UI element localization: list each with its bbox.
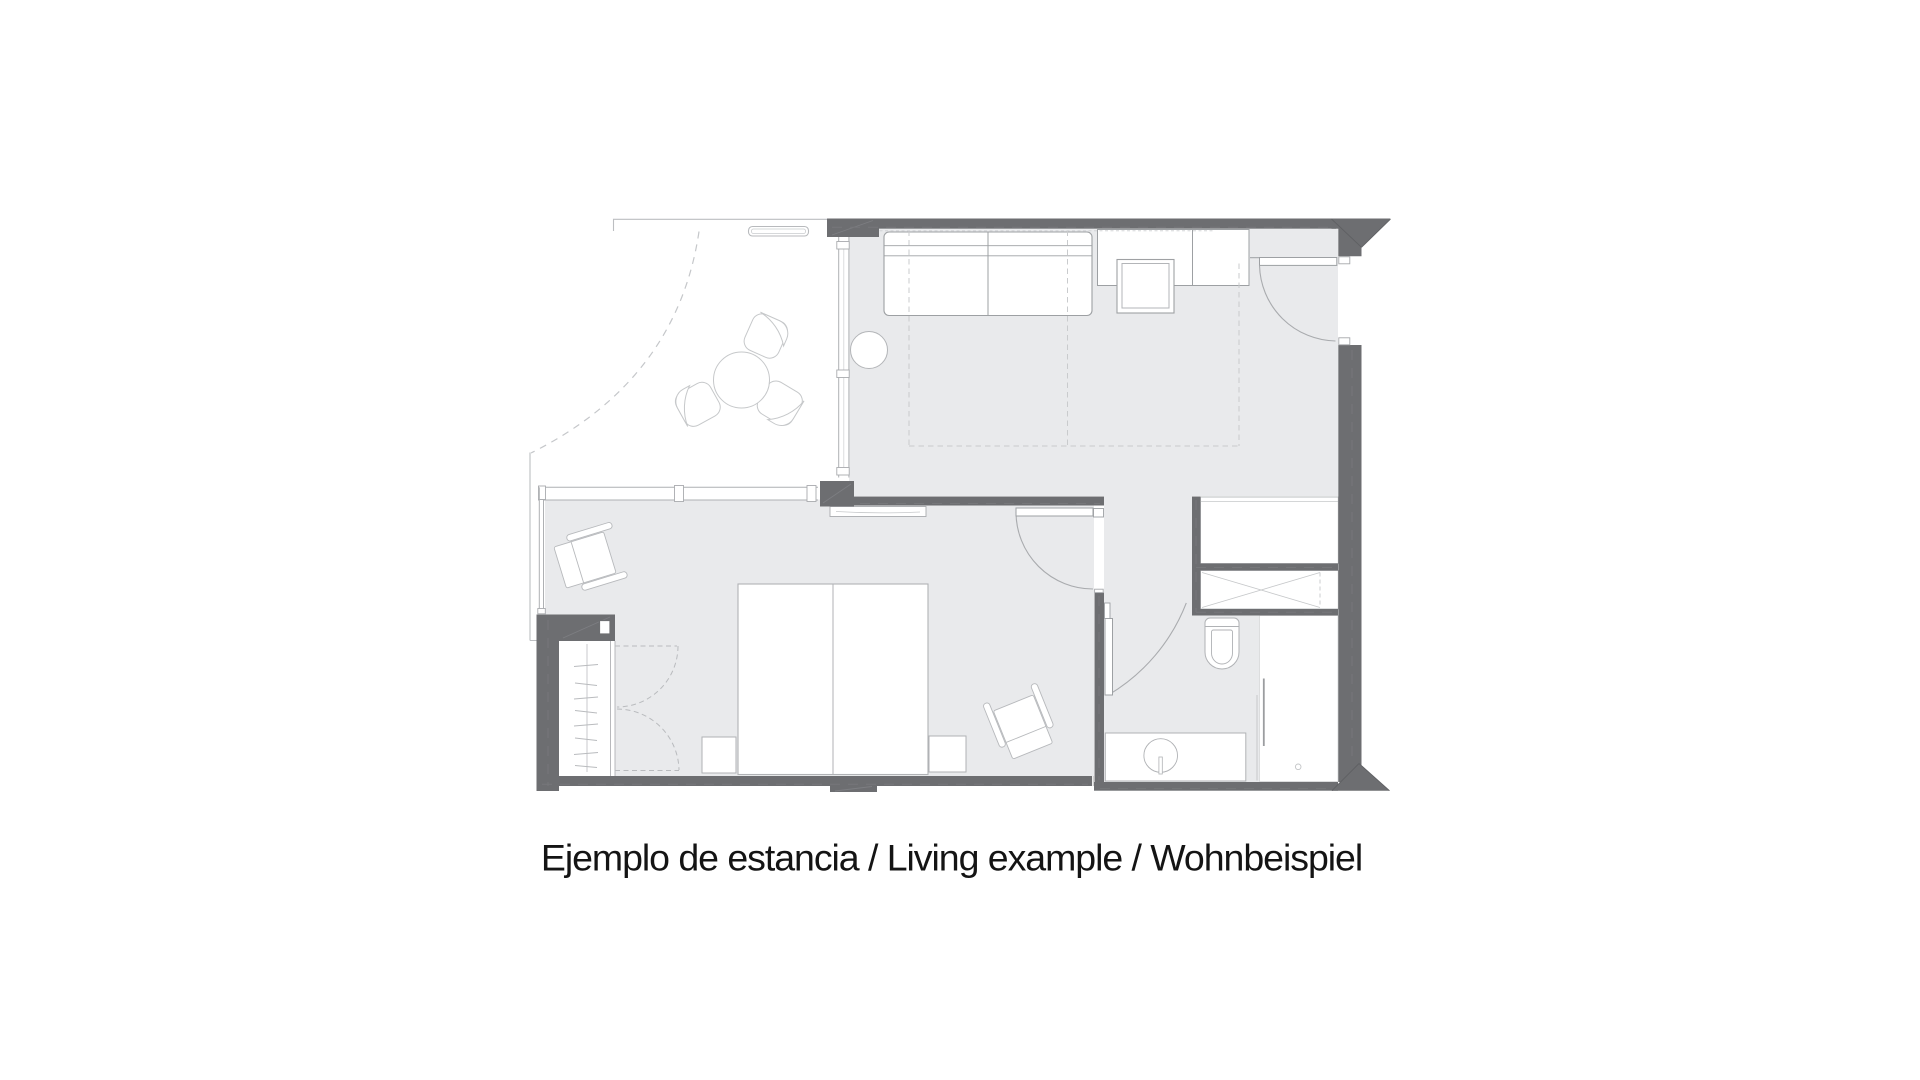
svg-text:Ejemplo de estancia / Living e: Ejemplo de estancia / Living example / W… [541, 837, 1362, 879]
